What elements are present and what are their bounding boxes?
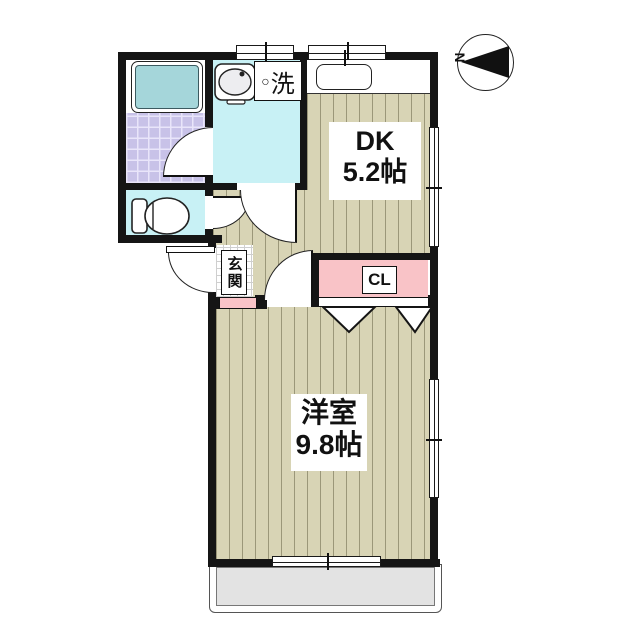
closet-label: CL [368, 270, 391, 290]
kitchen-faucet-icon [344, 50, 346, 66]
kitchen-sink [316, 64, 372, 90]
bathtub-inner [135, 65, 199, 109]
wall-under-bath [118, 183, 240, 190]
wall-left-upper [118, 52, 126, 243]
bathtub [131, 61, 203, 113]
front-door-leaf [166, 246, 215, 253]
floor-plan: 玄関 CL ○ 洗 DK 5.2帖 洋室 9.8帖 [0, 0, 640, 640]
dk-label: DK 5.2帖 [329, 122, 421, 200]
window-western-room-right [429, 379, 439, 498]
front-door-swing [168, 252, 213, 293]
dk-area: 5.2帖 [329, 157, 421, 188]
washroom-door-opening [237, 183, 295, 190]
laundry-space: ○ 洗 [254, 61, 302, 101]
window-kitchen-top [308, 45, 386, 60]
window-washroom-top [236, 45, 294, 60]
western-room-name: 洋室 [291, 397, 367, 429]
closet-bifold-icon [319, 305, 434, 335]
western-room-label: 洋室 9.8帖 [291, 394, 367, 471]
entrance-label: 玄関 [224, 256, 245, 290]
toilet-icon [126, 192, 192, 240]
washroom-sink-icon [213, 61, 258, 107]
wall-closet-top [311, 253, 438, 260]
balcony [216, 567, 435, 606]
closet-label-box: CL [362, 266, 397, 294]
entrance-step [219, 297, 257, 309]
toilet-door-opening [205, 196, 213, 229]
sliding-door-balcony [272, 556, 381, 567]
western-room-area: 9.8帖 [291, 429, 367, 461]
compass-north-label: N [453, 49, 468, 67]
laundry-marker-icon: ○ [261, 73, 269, 89]
window-dk-right [429, 127, 439, 247]
dk-name: DK [329, 126, 421, 157]
laundry-label: 洗 [271, 64, 295, 99]
entrance-label-box: 玄関 [221, 250, 247, 295]
